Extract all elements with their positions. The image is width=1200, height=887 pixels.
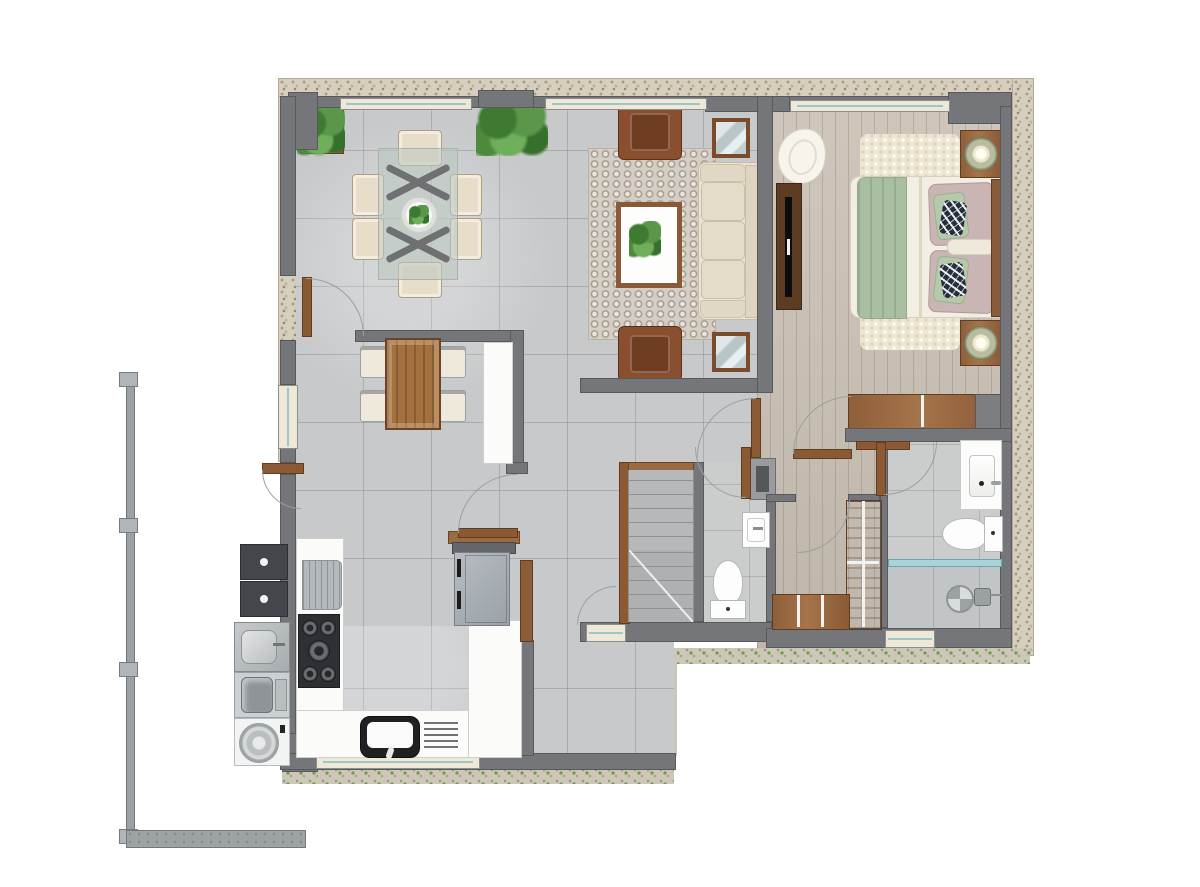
dresser [848, 394, 1002, 430]
toilet [713, 560, 743, 604]
shower-hose [989, 594, 1001, 596]
sink-faucet [385, 746, 395, 759]
wall-closet-top [766, 494, 796, 502]
entry-door-glazed [586, 624, 626, 642]
fence-post [119, 372, 138, 387]
sheet-fold [919, 177, 922, 317]
table-plant [629, 221, 661, 259]
stair-treads [628, 470, 694, 550]
exterior-wall-left [280, 447, 296, 463]
toilet-tank [710, 600, 746, 619]
sofa-arm [700, 300, 746, 318]
pebble-border-right [1012, 78, 1034, 656]
nook-chair [360, 390, 388, 422]
laundry-sink [234, 622, 290, 672]
concrete-strip [126, 830, 306, 848]
nook-chair [360, 346, 388, 378]
kitchen-sink [360, 716, 420, 758]
vanity-faucet [979, 481, 984, 486]
framed-mirror [712, 332, 750, 372]
window-dining [340, 98, 472, 110]
drainboard [424, 722, 458, 748]
toilet-tank [984, 516, 1003, 552]
nook-chair [438, 390, 466, 422]
wall-top-mid [705, 96, 790, 112]
dryer-drum [239, 723, 279, 763]
window-living [545, 98, 707, 110]
washing-machine [234, 672, 290, 718]
service-unit [240, 544, 288, 580]
bed [850, 176, 1002, 318]
shower-fixture [974, 588, 991, 606]
wall-living-bedroom-divider [757, 96, 773, 393]
gravel-border-bath [672, 648, 1030, 664]
window-left-wall [278, 385, 298, 449]
dishwasher [302, 560, 342, 610]
nightstand [960, 130, 1002, 178]
dryer [234, 718, 290, 766]
vanity-basin [969, 455, 995, 497]
window-bedroom [790, 100, 950, 112]
service-unit [240, 581, 288, 617]
sofa-arm [700, 164, 746, 182]
fence-post [119, 662, 138, 677]
door-swing-service [262, 470, 301, 509]
sofa-seat-cushion [701, 182, 745, 221]
dresser-end-unit [975, 394, 1002, 430]
fence-post [119, 518, 138, 533]
framed-mirror [712, 118, 750, 158]
exterior-wall-left [280, 96, 296, 276]
wall-living-bottom [580, 378, 772, 393]
armchair [618, 104, 682, 160]
window-bathroom-bottom [885, 630, 935, 648]
wardrobe [772, 594, 850, 630]
table-lamp [964, 137, 998, 171]
bed-runner [857, 177, 907, 319]
refrigerator [454, 552, 510, 626]
fence-line [126, 378, 135, 842]
sofa [698, 162, 762, 320]
dining-table-glass [378, 148, 458, 280]
nightstand [960, 320, 1002, 366]
wardrobe [846, 500, 882, 630]
table-lamp [964, 326, 998, 360]
floor-plan [0, 0, 1200, 887]
sink-faucet [753, 527, 763, 530]
gas-cooktop [298, 614, 340, 688]
counter-right [468, 620, 522, 758]
toilet [942, 518, 988, 550]
wall-column-top [478, 90, 534, 108]
center-plate [401, 197, 437, 233]
stair-lower-flight [628, 550, 694, 622]
pass-through-counter [483, 342, 513, 464]
potted-plant-monstera [476, 100, 548, 156]
cushion-patterned [938, 261, 967, 298]
sofa-seat-cushion [701, 221, 745, 260]
tall-cabinet [520, 560, 533, 642]
wall-kitchen-right [520, 640, 534, 756]
tv-console [776, 183, 802, 310]
nook-chair [438, 346, 466, 378]
shower-glass-screen [888, 559, 1002, 567]
coffee-table [616, 202, 682, 288]
floor-drain [946, 585, 974, 613]
pebble-border-top [278, 78, 1034, 98]
breakfast-table [385, 338, 441, 430]
plate-plant [409, 205, 429, 225]
exterior-wall-left [280, 340, 296, 385]
vanity [960, 440, 1002, 510]
armchair [618, 326, 682, 382]
bolster-pillow [947, 239, 995, 255]
wall-sink [742, 512, 770, 548]
sofa-seat-cushion [701, 260, 745, 299]
gravel-border-kitchen [282, 768, 674, 784]
